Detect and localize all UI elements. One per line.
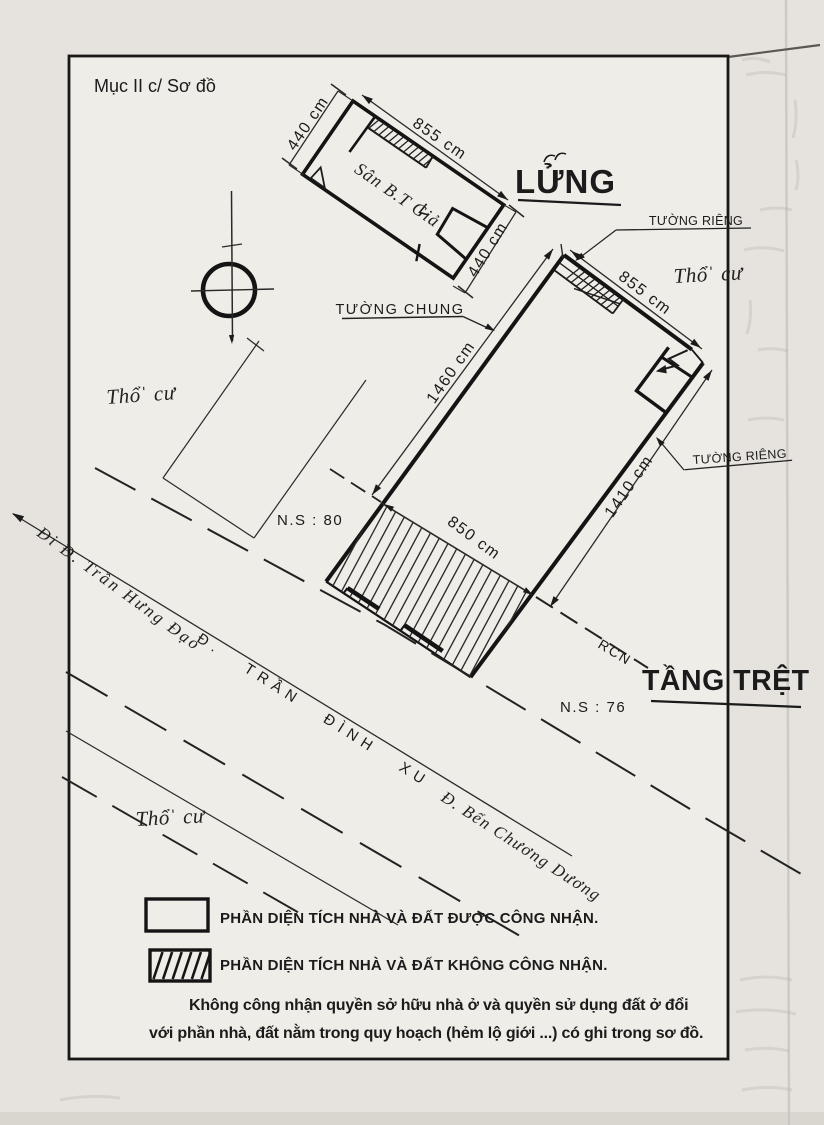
svg-text:PHẦN DIỆN TÍCH NHÀ VÀ ĐẤT ĐƯỢC: PHẦN DIỆN TÍCH NHÀ VÀ ĐẤT ĐƯỢC CÔNG NHẬN… [220,909,598,927]
svg-text:Thổˈ cư: Thổˈ cư [135,803,206,831]
svg-text:TẦNG TRỆT: TẦNG TRỆT [642,665,810,697]
svg-text:Thổˈ cư: Thổˈ cư [673,260,744,288]
svg-text:với phần nhà, đất nằm trong qu: với phần nhà, đất nằm trong quy hoạch (h… [149,1023,703,1042]
svg-text:N.S : 76: N.S : 76 [560,699,626,716]
svg-text:TƯỜNG RIÊNG: TƯỜNG RIÊNG [649,213,743,228]
svg-text:PHẦN DIỆN TÍCH NHÀ VÀ ĐẤT KHÔN: PHẦN DIỆN TÍCH NHÀ VÀ ĐẤT KHÔNG CÔNG NHẬ… [220,956,608,974]
svg-text:LỬNG: LỬNG [515,163,616,200]
svg-text:Không công nhận quyền sở hữu n: Không công nhận quyền sở hữu nhà ở và qu… [189,996,688,1014]
svg-text:Mục II c/ Sơ đồ: Mục II c/ Sơ đồ [94,76,216,96]
svg-text:Thổˈ cư: Thổˈ cư [106,380,178,409]
svg-text:TƯỜNG CHUNG: TƯỜNG CHUNG [335,301,464,318]
svg-text:N.S : 80: N.S : 80 [277,512,343,529]
